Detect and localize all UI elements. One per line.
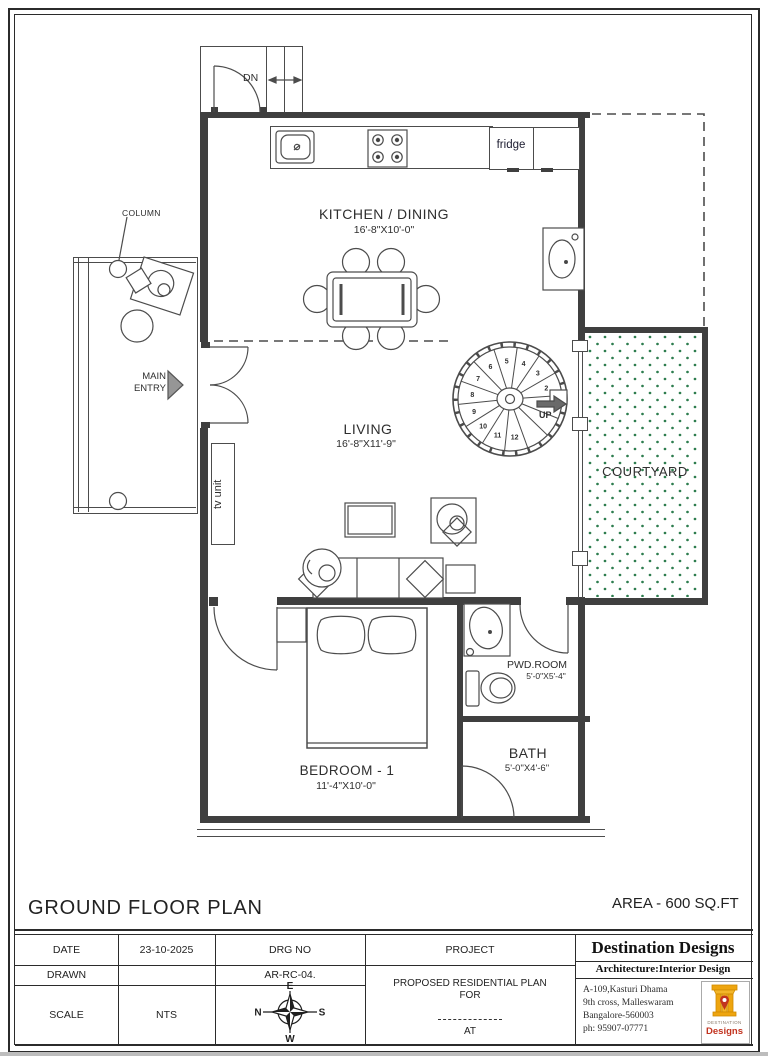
main-entry-label-2: ENTRY xyxy=(126,383,166,394)
dn-label: DN xyxy=(243,72,258,84)
toilet xyxy=(466,671,515,706)
footer-divider xyxy=(15,929,753,931)
bedroom-dim: 11'-4"X10'-0" xyxy=(316,780,376,792)
compass-north: N xyxy=(254,1008,261,1019)
courtyard-label: COURTYARD xyxy=(602,464,688,479)
compass-south: S xyxy=(319,1008,326,1019)
page-edge-shadow xyxy=(0,1052,768,1056)
pwd-label: PWD.ROOM xyxy=(507,659,567,671)
column-circle xyxy=(110,261,127,278)
up-label: UP xyxy=(539,410,552,420)
svg-text:7: 7 xyxy=(476,376,480,383)
wash-basin xyxy=(543,228,584,290)
logo-text-bottom: Designs xyxy=(702,1026,747,1037)
svg-text:4: 4 xyxy=(522,361,526,368)
column-circle xyxy=(110,493,127,510)
scale-value: NTS xyxy=(118,1009,215,1021)
drawn-label: DRAWN xyxy=(15,969,118,981)
date-label: DATE xyxy=(15,944,118,956)
footer-divider xyxy=(15,934,753,935)
project-line1: PROPOSED RESIDENTIAL PLAN xyxy=(365,978,575,989)
entry-door-top xyxy=(210,347,248,385)
firm-divider xyxy=(576,961,753,962)
kitchen-label: KITCHEN / DINING xyxy=(319,206,449,222)
scale-label: SCALE xyxy=(15,1009,118,1021)
dashed-open-above-outline xyxy=(592,114,704,327)
date-value: 23-10-2025 xyxy=(118,944,215,956)
firm-tagline: Architecture:Interior Design xyxy=(596,963,731,975)
side-table xyxy=(446,565,475,593)
svg-text:10: 10 xyxy=(479,424,487,431)
svg-text:5: 5 xyxy=(505,359,509,366)
project-fill-line xyxy=(438,1019,502,1020)
project-line3: AT xyxy=(365,1026,575,1037)
spiral-staircase: 1 2 3 4 5 6 7 8 9 10 11 12 xyxy=(453,342,567,456)
bath-label: BATH xyxy=(509,745,547,761)
bedroom-label: BEDROOM - 1 xyxy=(300,763,395,778)
kitchen-sink xyxy=(276,131,314,163)
porch-pot xyxy=(121,310,153,342)
firm-logo: DESTINATION Designs xyxy=(701,981,750,1044)
svg-text:3: 3 xyxy=(536,371,540,378)
svg-text:9: 9 xyxy=(472,409,476,416)
table-vline xyxy=(575,935,576,1044)
stove xyxy=(368,130,407,167)
bed xyxy=(277,608,427,748)
svg-text:8: 8 xyxy=(470,392,474,399)
logo-text-top: DESTINATION xyxy=(702,1020,747,1025)
svg-text:2: 2 xyxy=(544,386,548,393)
svg-text:11: 11 xyxy=(494,433,502,440)
dn-arrow xyxy=(269,77,301,83)
pwd-door xyxy=(520,605,568,653)
table-bottom xyxy=(15,1044,753,1046)
firm-address-3: Bangalore-560003 xyxy=(583,1011,654,1021)
coffee-table xyxy=(345,503,395,537)
firm-name: Destination Designs xyxy=(591,938,734,958)
fridge-label: fridge xyxy=(497,139,526,151)
pwd-sink xyxy=(464,604,510,656)
logo-column-icon xyxy=(702,984,747,1020)
firm-address-1: A-109,Kasturi Dhama xyxy=(583,985,667,995)
column-label: COLUMN xyxy=(122,208,161,218)
drg-no-label: DRG NO xyxy=(215,944,365,956)
column-leader-line xyxy=(119,217,127,260)
svg-text:12: 12 xyxy=(511,435,519,442)
main-entry-arrow xyxy=(168,371,183,399)
living-label: LIVING xyxy=(344,421,393,437)
bedside-table xyxy=(277,608,306,642)
bath-dim: 5'-0"X4'-6" xyxy=(505,763,549,774)
firm-divider xyxy=(576,978,753,979)
dining-set xyxy=(304,249,440,350)
compass-west: W xyxy=(285,1034,295,1044)
firm-address-2: 9th cross, Malleswaram xyxy=(583,998,674,1008)
svg-text:6: 6 xyxy=(488,364,492,371)
kitchen-dim: 16'-8"X10'-0" xyxy=(354,224,415,236)
project-line2: FOR xyxy=(365,990,575,1001)
table-hline xyxy=(15,965,575,966)
plan-title: GROUND FLOOR PLAN xyxy=(28,897,263,920)
firm-address-4: ph: 95907-07771 xyxy=(583,1024,648,1034)
pwd-dim: 5'-0"X5'-4" xyxy=(526,671,566,681)
tv-unit-label: tv unit xyxy=(212,448,232,540)
accent-chair-left xyxy=(303,549,341,587)
main-entry-label-1: MAIN xyxy=(131,371,166,382)
compass-rose: E S W N xyxy=(250,982,330,1044)
porch-chair xyxy=(120,254,193,315)
drg-no-value: AR-RC-04. xyxy=(215,969,365,981)
entry-door-bottom xyxy=(210,385,248,423)
living-dim: 16'-8"X11'-9" xyxy=(336,438,396,450)
compass-east: E xyxy=(287,982,294,992)
project-label: PROJECT xyxy=(365,944,575,956)
accent-chair-right xyxy=(431,498,476,546)
area-label: AREA - 600 SQ.FT xyxy=(612,895,739,912)
drawing-sheet: 1 2 3 4 5 6 7 8 9 10 11 12 xyxy=(0,0,768,1058)
bedroom-door xyxy=(214,607,277,670)
